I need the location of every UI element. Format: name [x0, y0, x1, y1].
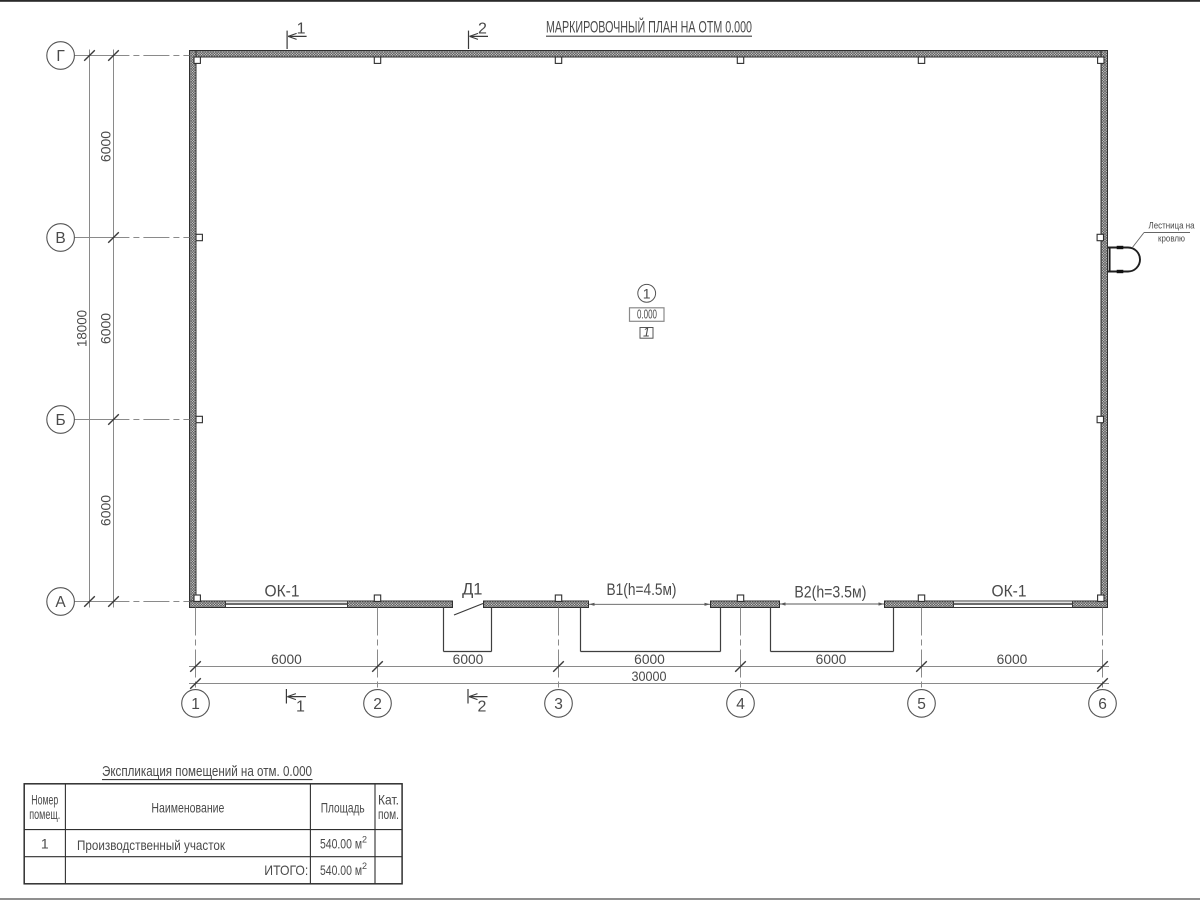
- svg-text:540.00 м2: 540.00 м2: [320, 835, 367, 852]
- svg-text:1: 1: [643, 285, 651, 301]
- svg-text:помещ.: помещ.: [29, 806, 60, 822]
- svg-text:В: В: [55, 230, 65, 247]
- svg-text:пом.: пом.: [378, 806, 399, 822]
- svg-text:ОК-1: ОК-1: [992, 583, 1027, 601]
- svg-text:В2(h=3.5м): В2(h=3.5м): [794, 583, 866, 601]
- svg-text:МАРКИРОВОЧНЫЙ ПЛАН НА ОТМ 0.00: МАРКИРОВОЧНЫЙ ПЛАН НА ОТМ 0.000: [546, 18, 752, 37]
- svg-text:2: 2: [373, 696, 382, 713]
- svg-text:6000: 6000: [271, 652, 302, 667]
- svg-text:Г: Г: [56, 48, 65, 65]
- svg-text:6000: 6000: [97, 313, 113, 344]
- svg-text:6: 6: [1098, 696, 1107, 713]
- svg-text:Производственный участок: Производственный участок: [77, 837, 226, 853]
- svg-text:6000: 6000: [816, 652, 847, 667]
- svg-text:0.000: 0.000: [637, 307, 657, 321]
- svg-text:30000: 30000: [632, 669, 667, 684]
- svg-text:540.00 м2: 540.00 м2: [320, 861, 367, 878]
- svg-text:4: 4: [736, 696, 745, 713]
- svg-text:6000: 6000: [97, 495, 113, 526]
- svg-text:ИТОГО:: ИТОГО:: [264, 862, 308, 878]
- svg-text:1: 1: [643, 326, 650, 340]
- svg-text:Д1: Д1: [462, 581, 482, 599]
- svg-text:В1(h=4.5м): В1(h=4.5м): [607, 581, 677, 599]
- svg-text:1: 1: [41, 836, 49, 852]
- svg-text:1: 1: [191, 696, 200, 713]
- svg-text:А: А: [55, 594, 66, 611]
- svg-text:2: 2: [478, 699, 487, 716]
- svg-text:Лестница на: Лестница на: [1149, 221, 1195, 231]
- svg-text:Экспликация помещений на отм.: Экспликация помещений на отм. 0.000: [102, 764, 312, 780]
- svg-text:18000: 18000: [73, 310, 89, 347]
- svg-text:5: 5: [917, 696, 926, 713]
- svg-text:1: 1: [296, 699, 305, 716]
- svg-text:Б: Б: [56, 412, 66, 429]
- svg-text:ОК-1: ОК-1: [265, 583, 300, 601]
- svg-text:Площадь: Площадь: [321, 800, 365, 816]
- svg-text:6000: 6000: [97, 131, 113, 162]
- svg-text:6000: 6000: [997, 652, 1028, 667]
- svg-text:1: 1: [297, 21, 306, 38]
- svg-text:6000: 6000: [634, 652, 665, 667]
- svg-text:2: 2: [478, 21, 487, 38]
- svg-text:кровлю: кровлю: [1158, 234, 1185, 244]
- svg-text:6000: 6000: [453, 652, 484, 667]
- svg-text:3: 3: [554, 696, 563, 713]
- svg-text:Наименование: Наименование: [151, 800, 224, 816]
